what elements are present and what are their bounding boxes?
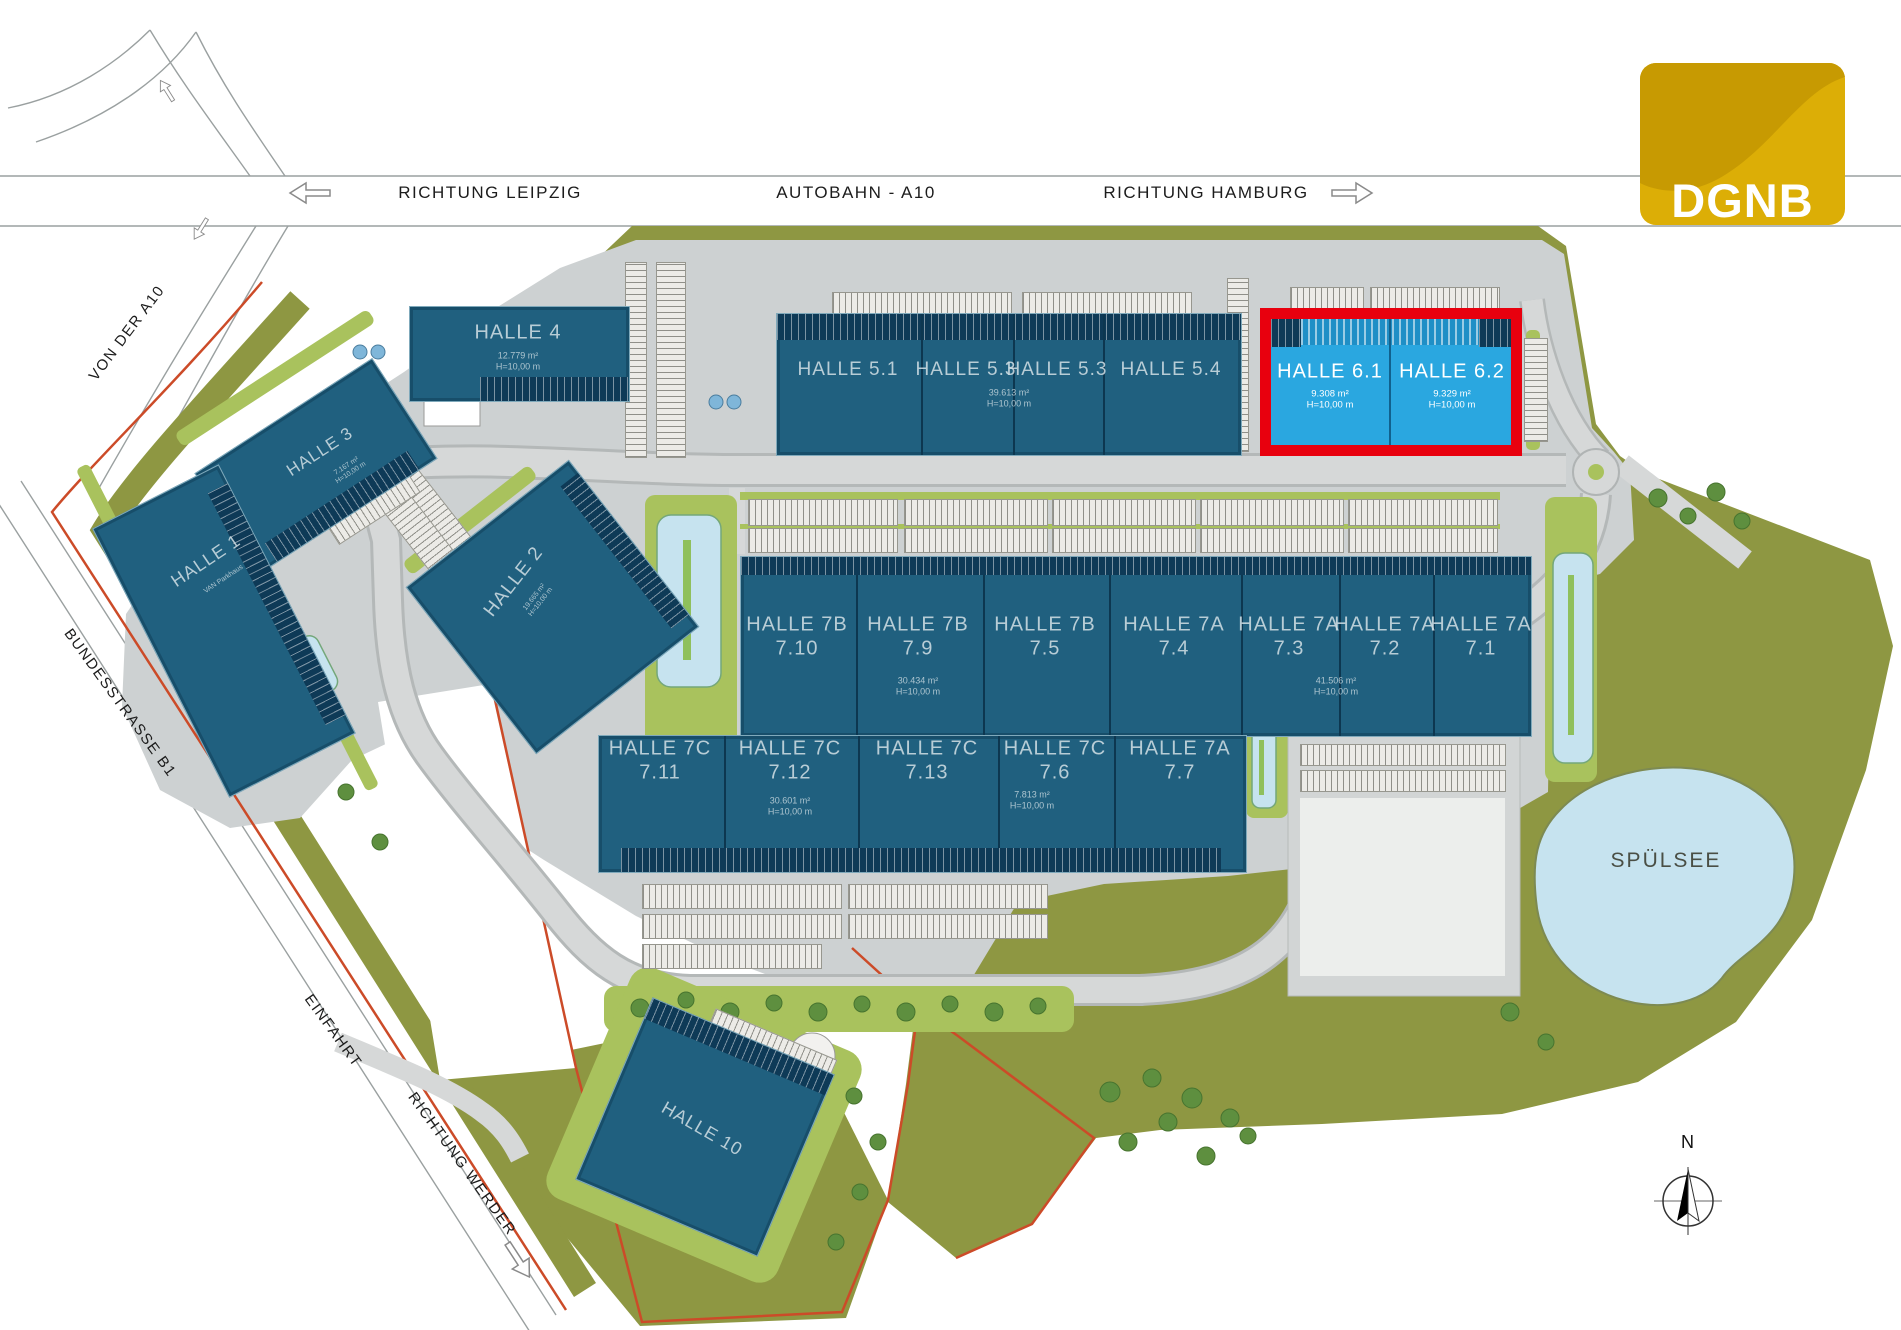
parking-row (848, 914, 1048, 939)
roundabout-island (1588, 464, 1604, 480)
hall-divider (1389, 319, 1391, 445)
parking-row (904, 528, 1048, 553)
hall-7-2-label: HALLE 7A 7.2 (1334, 613, 1435, 662)
hall-divider (1103, 314, 1105, 455)
hall-divider (983, 575, 985, 736)
trailer-parking-row (1290, 287, 1364, 309)
hall-7-1-number: 7.1 (1430, 637, 1531, 661)
hall-7-13-number: 7.13 (876, 761, 979, 785)
hall-6-2-height: H=10,00 m (1429, 400, 1476, 411)
hall-divider (1013, 314, 1015, 455)
hall-7-7-type: HALLE 7A (1129, 737, 1230, 761)
hall-7b-specs: 30.434 m² H=10,00 m (896, 676, 940, 697)
parking-row (642, 884, 842, 909)
hall-divider (921, 314, 923, 455)
hall-divider (1114, 736, 1116, 848)
parking-row (904, 499, 1048, 526)
road-label-autobahn: AUTOBAHN - A10 (776, 183, 936, 203)
parking-row (1200, 528, 1344, 553)
hall-7-4-number: 7.4 (1123, 637, 1224, 661)
dgnb-logo-text: DGNB (1640, 177, 1845, 224)
hall-7-4-label: HALLE 7A 7.4 (1123, 613, 1224, 662)
hall-7a-height: H=10,00 m (1314, 686, 1358, 697)
hall-7-12-type: HALLE 7C (739, 737, 842, 761)
hall-7b-height: H=10,00 m (896, 686, 940, 697)
east-lot-pad (1300, 798, 1505, 976)
hall-7-9-type: HALLE 7B (867, 613, 968, 637)
hall-7a-specs: 41.506 m² H=10,00 m (1314, 676, 1358, 697)
hall-5-4-label: HALLE 5.4 (1121, 359, 1222, 381)
parking-row (1200, 499, 1344, 526)
hall-7-6-area: 7.813 m² (1010, 790, 1054, 801)
hall-7-11-type: HALLE 7C (609, 737, 712, 761)
hall-4-height: H=10,00 m (496, 361, 540, 372)
loading-dock (741, 557, 1531, 575)
hall-7-7-label: HALLE 7A 7.7 (1129, 737, 1230, 786)
loading-dock (621, 848, 1221, 872)
hall-7-12-number: 7.12 (739, 761, 842, 785)
hall-7c-height: H=10,00 m (768, 806, 812, 817)
hall-6-1-label: HALLE 6.1 (1277, 361, 1383, 384)
hall-7-6-label: HALLE 7C 7.6 (1004, 737, 1107, 786)
parking-row (642, 944, 822, 969)
hall-7-10-label: HALLE 7B 7.10 (746, 613, 847, 662)
compass: N (1648, 1132, 1728, 1242)
road-label-hamburg: RICHTUNG HAMBURG (1103, 183, 1308, 203)
hall-7-13-type: HALLE 7C (876, 737, 979, 761)
hall-7-13-label: HALLE 7C 7.13 (876, 737, 979, 786)
hall-6-1-area: 9.308 m² (1307, 390, 1354, 401)
north-arrow-icon (1648, 1153, 1728, 1239)
loading-dock (480, 377, 628, 401)
hall-divider (858, 736, 860, 848)
hall-6-1-height: H=10,00 m (1307, 400, 1354, 411)
hall-7-6-type: HALLE 7C (1004, 737, 1107, 761)
parking-row (1348, 528, 1498, 553)
hall-7-3-type: HALLE 7A (1238, 613, 1339, 637)
hall-7-5-type: HALLE 7B (994, 613, 1095, 637)
hall-4-area: 12.779 m² (496, 351, 540, 362)
hall-7-2-type: HALLE 7A (1334, 613, 1435, 637)
hall-5-3a-label: HALLE 5.3 (916, 359, 1017, 381)
hall-divider (856, 575, 858, 736)
parking-row (748, 528, 898, 553)
lake-label: SPÜLSEE (1611, 849, 1722, 873)
hall-6-2-specs: 9.329 m² H=10,00 m (1429, 390, 1476, 411)
north-label: N (1648, 1132, 1728, 1153)
parking-row (1052, 499, 1196, 526)
parking-row (656, 262, 686, 458)
hall-divider (1109, 575, 1111, 736)
hall-7-5-number: 7.5 (994, 637, 1095, 661)
hall-5-specs: 39.613 m² H=10,00 m (987, 388, 1031, 409)
parking-row (848, 884, 1048, 909)
parking-row (748, 499, 898, 526)
hall-7a-area: 41.506 m² (1314, 676, 1358, 687)
hall-7-11-label: HALLE 7C 7.11 (609, 737, 712, 786)
hall-7-1-type: HALLE 7A (1430, 613, 1531, 637)
hall-5-3b-label: HALLE 5.3 (1007, 359, 1108, 381)
hall-7-6-number: 7.6 (1004, 761, 1107, 785)
hall-7-9-number: 7.9 (867, 637, 968, 661)
hall-7-11-number: 7.11 (609, 761, 712, 785)
hall-5-1-label: HALLE 5.1 (798, 359, 899, 381)
hall-4-specs: 12.779 m² H=10,00 m (496, 351, 540, 372)
loading-dock (1271, 319, 1301, 347)
hall-7-3-number: 7.3 (1238, 637, 1339, 661)
hall-divider (724, 736, 726, 848)
hall-4-label: HALLE 4 (474, 322, 561, 345)
hall-7b-area: 30.434 m² (896, 676, 940, 687)
hall-divider (998, 736, 1000, 848)
parking-row (1300, 744, 1506, 766)
parking-row (1524, 338, 1548, 442)
hall-7-4-type: HALLE 7A (1123, 613, 1224, 637)
parking-row (1300, 770, 1506, 792)
hall-7-12-label: HALLE 7C 7.12 (739, 737, 842, 786)
hall-7-3-label: HALLE 7A 7.3 (1238, 613, 1339, 662)
hall-7-1-label: HALLE 7A 7.1 (1430, 613, 1531, 662)
hall-7-2-number: 7.2 (1334, 637, 1435, 661)
hall-7-9-label: HALLE 7B 7.9 (867, 613, 968, 662)
road-label-leipzig: RICHTUNG LEIPZIG (398, 183, 582, 203)
hall-7-7-number: 7.7 (1129, 761, 1230, 785)
hall-7-10-number: 7.10 (746, 637, 847, 661)
loading-dock (1479, 319, 1511, 347)
hall-6-2-area: 9.329 m² (1429, 390, 1476, 401)
parking-row (1348, 499, 1498, 526)
hall-7-10-type: HALLE 7B (746, 613, 847, 637)
parking-row (1052, 528, 1196, 553)
hall-5-area: 39.613 m² (987, 388, 1031, 399)
dgnb-logo: DGNB (1640, 63, 1845, 225)
hall-7-6-specs: 7.813 m² H=10,00 m (1010, 790, 1054, 811)
hall-5-height: H=10,00 m (987, 398, 1031, 409)
loading-dock (777, 314, 1241, 340)
hall-7c-area: 30.601 m² (768, 796, 812, 807)
hall-6-2-label: HALLE 6.2 (1399, 361, 1505, 384)
parking-row (642, 914, 842, 939)
hall-7-6-height: H=10,00 m (1010, 800, 1054, 811)
hall-5-block (776, 313, 1242, 456)
hall-7c-specs: 30.601 m² H=10,00 m (768, 796, 812, 817)
site-plan: HALLE 4 12.779 m² H=10,00 m HALLE 5.1 HA… (0, 0, 1901, 1330)
hall-7-5-label: HALLE 7B 7.5 (994, 613, 1095, 662)
hall-6-1-specs: 9.308 m² H=10,00 m (1307, 390, 1354, 411)
trailer-parking-row (1370, 287, 1500, 309)
